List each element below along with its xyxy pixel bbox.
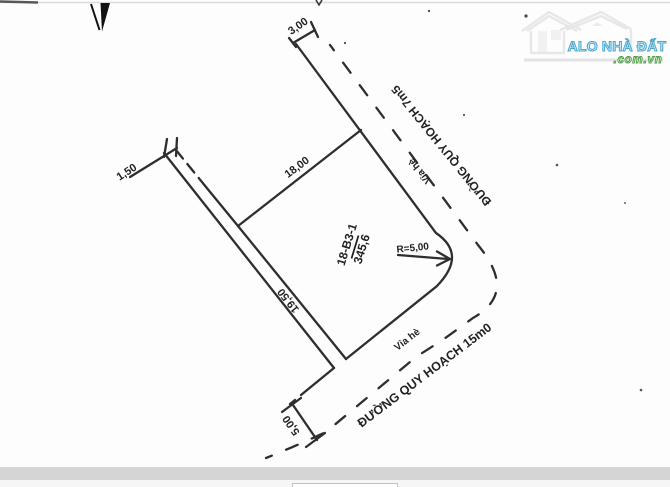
svg-text:.com.vn: .com.vn [613,54,662,66]
svg-text:ALO NHÀ ĐẤT: ALO NHÀ ĐẤT [568,38,667,54]
